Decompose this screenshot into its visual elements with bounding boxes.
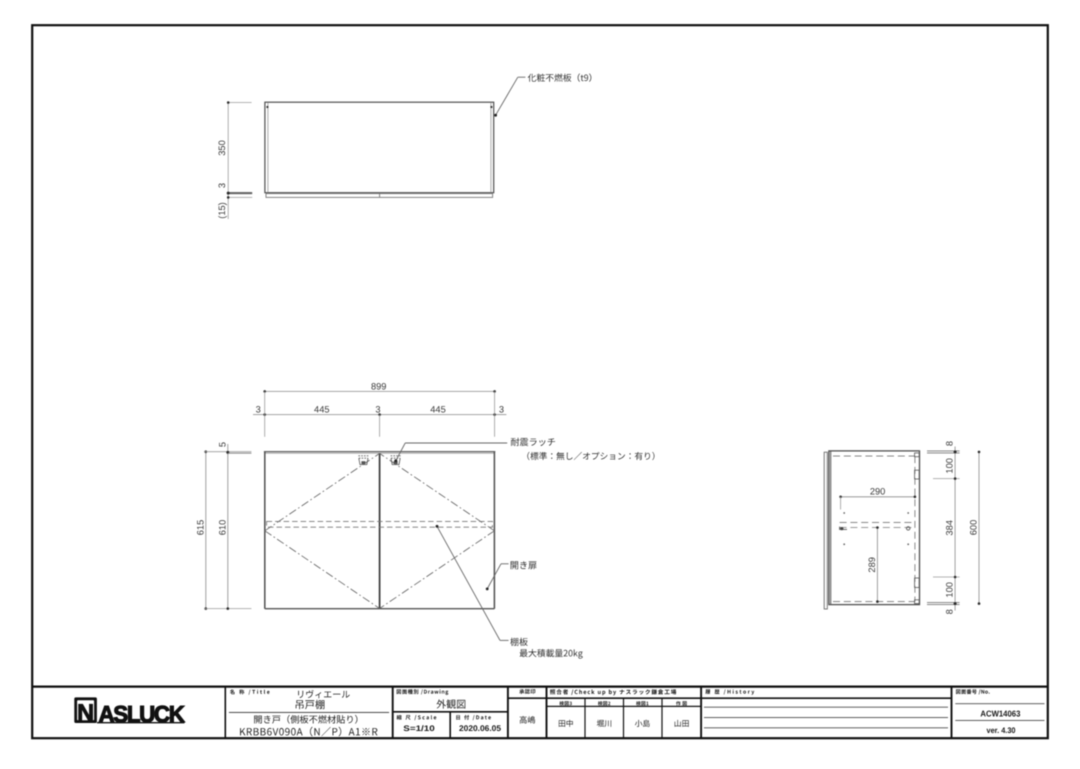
svg-text:3: 3 [375, 404, 380, 414]
svg-text:100: 100 [945, 458, 955, 474]
svg-text:384: 384 [945, 520, 955, 536]
svg-text:(15): (15) [217, 202, 227, 219]
svg-text:610: 610 [217, 520, 227, 536]
svg-text:899: 899 [371, 381, 387, 391]
svg-text:615: 615 [195, 520, 205, 536]
svg-text:290: 290 [870, 487, 886, 497]
svg-text:3: 3 [256, 404, 261, 414]
svg-text:445: 445 [314, 404, 330, 414]
svg-text:3: 3 [499, 404, 504, 414]
svg-text:ACW14063: ACW14063 [980, 708, 1020, 718]
svg-text:289: 289 [867, 557, 877, 573]
svg-text:8: 8 [945, 441, 955, 446]
svg-text:ver. 4.30: ver. 4.30 [987, 726, 1016, 735]
svg-text:5: 5 [217, 442, 227, 447]
svg-text:445: 445 [430, 404, 446, 414]
svg-text:2020.06.05: 2020.06.05 [459, 724, 501, 733]
svg-text:8: 8 [945, 609, 955, 614]
svg-text:100: 100 [945, 582, 955, 598]
svg-text:3: 3 [217, 183, 227, 188]
svg-text:350: 350 [217, 140, 227, 156]
svg-text:N: N [77, 699, 94, 725]
svg-text:600: 600 [969, 520, 979, 536]
svg-text:S=1/10: S=1/10 [403, 724, 435, 733]
